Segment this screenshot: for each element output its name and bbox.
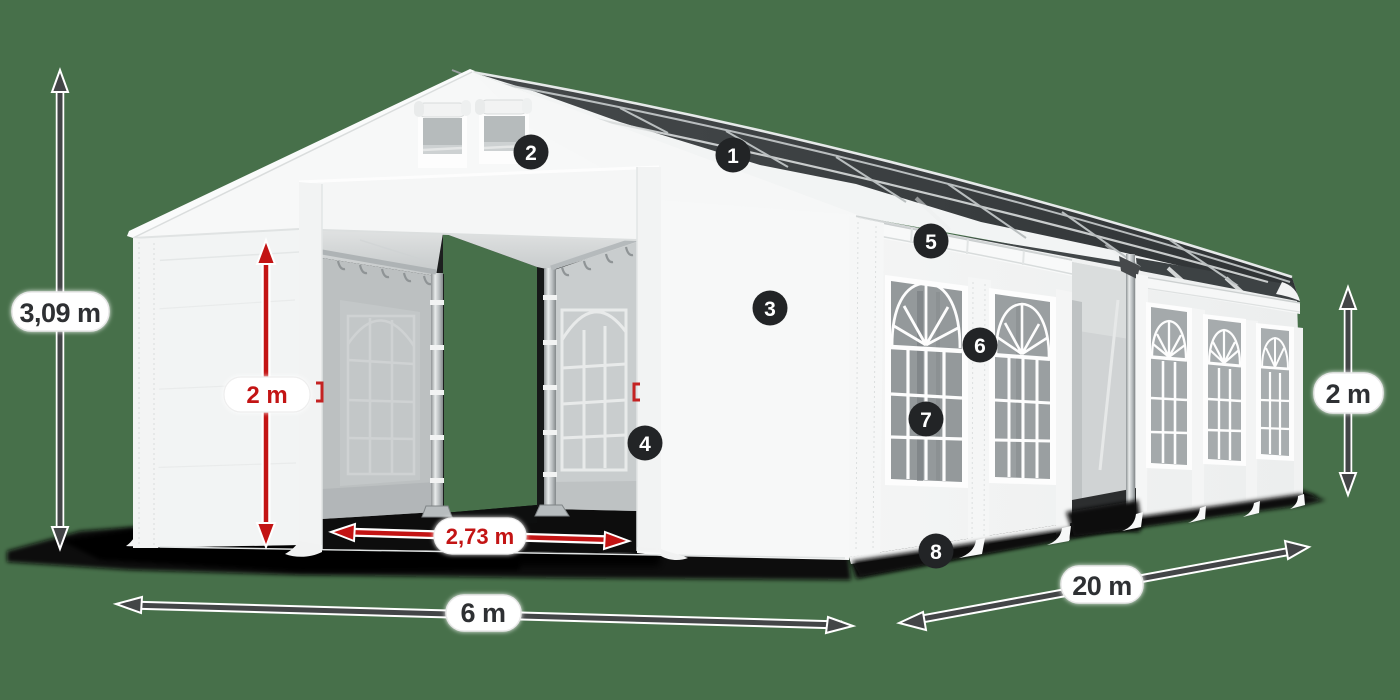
svg-text:3,09 m: 3,09 m [19,298,100,328]
svg-text:1: 1 [727,145,739,168]
svg-text:7: 7 [920,409,932,432]
svg-text:2: 2 [525,142,537,165]
svg-text:6 m: 6 m [460,598,505,628]
svg-text:2 m: 2 m [246,382,287,409]
svg-text:20 m: 20 m [1072,571,1132,601]
svg-text:6: 6 [974,335,986,358]
svg-text:2 m: 2 m [1325,379,1370,409]
svg-text:8: 8 [930,541,942,564]
svg-text:4: 4 [639,433,651,456]
svg-text:2,73 m: 2,73 m [446,524,515,549]
svg-text:5: 5 [925,231,937,254]
svg-text:3: 3 [764,298,776,321]
